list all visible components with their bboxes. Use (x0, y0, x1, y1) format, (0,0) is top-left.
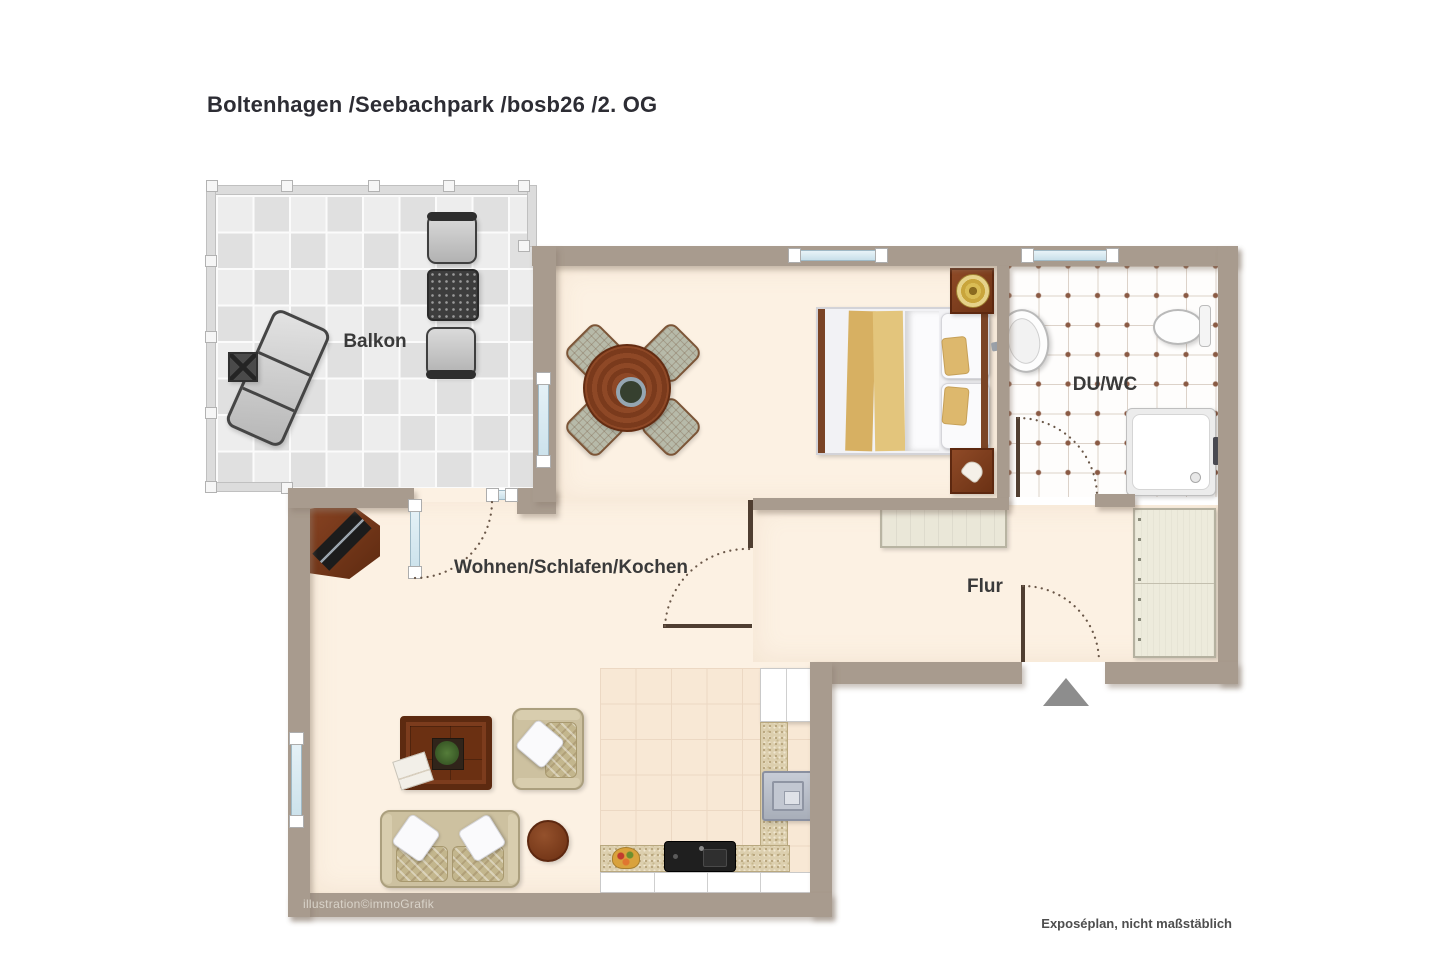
room-label-balcony: Balkon (330, 331, 420, 353)
railing-post (206, 180, 218, 192)
shower (1126, 408, 1216, 496)
bed-duvet (905, 311, 939, 451)
railing-post (205, 255, 217, 267)
room-label-hall: Flur (950, 576, 1020, 598)
room-label-living: Wohnen/Schlafen/Kochen (440, 557, 702, 579)
page-title: Boltenhagen /Seebachpark /bosb26 /2. OG (207, 92, 657, 118)
sink-basin (703, 849, 727, 867)
railing-post (205, 331, 217, 343)
sideboard (880, 508, 1007, 548)
floorplan-canvas: Boltenhagen /Seebachpark /bosb26 /2. OG (0, 0, 1440, 960)
fruit-bowl (612, 847, 640, 869)
wardrobe-shelf-line (1135, 583, 1214, 584)
wall-hall-top (753, 498, 1009, 510)
wall-balcony-separation (288, 488, 414, 508)
balcony-door-threshold (414, 488, 487, 502)
toilet-tank (1199, 305, 1211, 347)
tv-screen (312, 511, 371, 570)
decor-shell (960, 458, 987, 484)
window-bedroom (789, 250, 887, 261)
railing-post (205, 481, 217, 493)
bed-frame-rail (818, 309, 825, 453)
bed-blanket (845, 311, 876, 452)
plant (435, 741, 459, 765)
planter (432, 738, 464, 770)
bed (816, 307, 990, 455)
table-centerpiece (616, 377, 646, 407)
railing-post (205, 407, 217, 419)
scale-disclaimer: Exposéplan, nicht maßstäblich (1000, 916, 1232, 931)
railing-post (368, 180, 380, 192)
entrance-arrow-icon (1043, 678, 1089, 706)
sink-knob (673, 854, 678, 859)
chair-back (427, 212, 477, 221)
window-balcony-separation (487, 490, 517, 500)
railing-post (281, 180, 293, 192)
balcony-chair-south (426, 327, 476, 377)
railing-post (443, 180, 455, 192)
wall-left-living (288, 488, 310, 917)
kitchen-sink (664, 841, 736, 872)
illustration-credit: illustration©immoGrafik (303, 897, 434, 911)
headboard (981, 311, 988, 451)
wall-right (1218, 246, 1238, 684)
coffee-table (400, 716, 492, 790)
armrest (516, 778, 580, 788)
wall-bathroom-bottom (1095, 494, 1135, 507)
railing-post (518, 180, 530, 192)
sink-basin (1004, 316, 1044, 367)
armrest (382, 814, 392, 884)
lounge-divider (242, 387, 294, 413)
armrest (508, 814, 518, 884)
shower-drain (1190, 472, 1201, 483)
bed-blanket (873, 311, 905, 452)
side-table-round (527, 820, 569, 862)
railing-post (518, 240, 530, 252)
cabinet-divider (707, 873, 708, 892)
stove (762, 771, 814, 821)
kitchen-upper-cabinet (760, 668, 812, 722)
balcony-chair-north (427, 214, 477, 264)
oven-window (784, 791, 800, 805)
window-living-left (291, 733, 302, 827)
toilet (1153, 309, 1203, 345)
wardrobe (1133, 508, 1216, 658)
wall-bottom-right (1105, 662, 1238, 684)
balcony-door-leaf (410, 500, 420, 578)
cabinet-divider (654, 873, 655, 892)
armchair (512, 708, 584, 790)
cabinet-divider (786, 669, 787, 721)
room-label-bath: DU/WC (1050, 374, 1160, 396)
balcony-railing-bottom (206, 482, 290, 492)
bathroom-door-leaf (1016, 417, 1020, 497)
window-bathroom (1022, 250, 1118, 261)
nightstand-bottom (950, 448, 994, 494)
sofa (380, 810, 520, 888)
bed-cushion (941, 386, 969, 426)
bedside-lamp (956, 274, 990, 308)
window-balcony-side (538, 373, 549, 467)
partition-kitchen (663, 624, 752, 628)
balcony-railing-right (527, 185, 537, 247)
balcony-side-table (228, 352, 258, 382)
dining-table (583, 344, 671, 432)
wall-kitchen-right (810, 662, 832, 917)
balcony-table (427, 269, 479, 321)
wardrobe-hinges (1138, 518, 1141, 648)
lounge-divider (258, 351, 310, 377)
bed-cushion (941, 336, 970, 376)
wall-hall-bottom (810, 662, 1022, 684)
wall-bathroom-left (997, 266, 1009, 502)
armrest (516, 710, 580, 720)
chair-back (426, 370, 476, 379)
wall-stub-hall (748, 500, 753, 548)
nightstand-top (950, 268, 994, 314)
entrance-door-leaf (1021, 585, 1025, 662)
cabinet-divider (760, 873, 761, 892)
kitchen-base-cabinets (600, 872, 812, 893)
